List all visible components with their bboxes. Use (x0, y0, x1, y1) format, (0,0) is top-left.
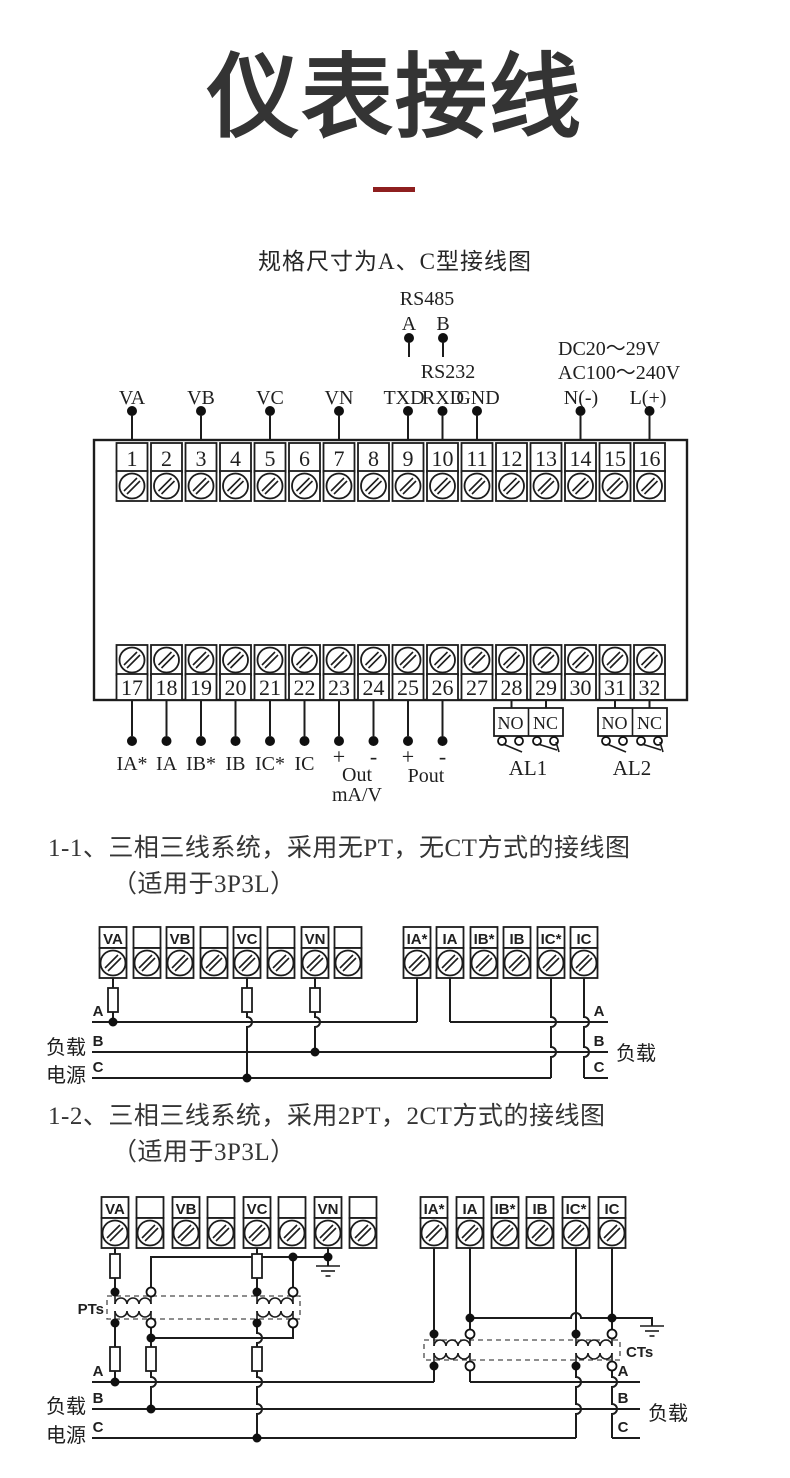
relay-al1: NO NC AL1 (494, 700, 563, 780)
terminal-number: 16 (639, 446, 661, 471)
terminal-number: 30 (570, 675, 592, 700)
main-terminal-diagram: RS485 A B RS232 TXD RXD GND DC20～29V AC1… (0, 280, 790, 810)
title-underline (373, 187, 415, 192)
terminal-number: 17 (121, 675, 143, 700)
pt-transformers: PTs (78, 1288, 300, 1328)
phase-b-right: B (618, 1390, 629, 1407)
phase-c-left: C (93, 1419, 104, 1436)
page-title: 仪表接线 (0, 52, 790, 144)
terminal-number: 3 (196, 446, 207, 471)
terminal-cell: 3 (186, 443, 217, 501)
terminal-number: 27 (466, 675, 488, 700)
source-label-line1: 负载 (46, 1395, 86, 1418)
phase-c-right: C (618, 1419, 629, 1436)
rs485-label: RS485 (400, 288, 454, 310)
terminal-label: VC (237, 931, 258, 948)
terminal-cell: IA (457, 1197, 484, 1248)
terminal-cell: 27 (462, 645, 493, 700)
terminal-cell: 2 (151, 443, 182, 501)
vc-label: VC (256, 387, 284, 409)
terminal-cell (279, 1197, 306, 1248)
al1-nc-label: NC (533, 713, 558, 733)
rs232-block: RS232 TXD RXD GND (383, 361, 499, 409)
relay-al2: NO NC AL2 (598, 700, 667, 780)
terminal-cell: 10 (427, 443, 458, 501)
terminal-cell: 24 (358, 645, 389, 700)
gnd-label: GND (456, 387, 499, 409)
ac-rating-label: AC100～240V (558, 362, 681, 384)
diagram2-current-terminals: IA* IA IB* IB IC* IC (421, 1197, 626, 1248)
terminal-cell: VA (102, 1197, 129, 1248)
terminal-cell: 11 (462, 443, 493, 501)
terminal-cell: 5 (255, 443, 286, 501)
terminal-number: 2 (161, 446, 172, 471)
terminal-number: 14 (570, 446, 592, 471)
vb-label: VB (187, 387, 215, 409)
terminal-number: 6 (299, 446, 310, 471)
source-label-line2: 电源 (46, 1064, 86, 1087)
ia-star-label: IA* (116, 753, 147, 775)
terminal-cell (268, 927, 295, 978)
phase-a-left: A (93, 1363, 104, 1380)
terminal-cell: VB (167, 927, 194, 978)
diagram1-voltage-terminals: VA VB VC VN (100, 927, 362, 978)
ic-label: IC (295, 753, 315, 775)
dc-rating-label: DC20～29V (558, 338, 661, 360)
al2-no-label: NO (602, 713, 628, 733)
terminal-cell: 32 (634, 645, 665, 700)
terminal-number: 15 (604, 446, 626, 471)
pts-label: PTs (78, 1301, 104, 1318)
terminal-number: 28 (501, 675, 523, 700)
terminal-cell: IC* (538, 927, 565, 978)
terminal-cell: IB (527, 1197, 554, 1248)
out-unit-label: mA/V (332, 784, 383, 806)
terminal-number: 8 (368, 446, 379, 471)
neutral-label: N(-) (564, 387, 598, 409)
line-label: L(+) (630, 387, 667, 409)
terminal-cell (208, 1197, 235, 1248)
terminal-cell: 21 (255, 645, 286, 700)
terminal-cell: IB* (471, 927, 498, 978)
rs485-a-label: A (402, 313, 417, 335)
bottom-lead-wires (127, 700, 448, 746)
phase-c-right: C (594, 1059, 605, 1076)
terminal-number: 29 (535, 675, 557, 700)
terminal-cell: 25 (393, 645, 424, 700)
terminal-cell: 19 (186, 645, 217, 700)
section-1-1-heading: 1-1、三相三线系统，采用无PT，无CT方式的接线图 (48, 828, 768, 864)
power-supply-block: DC20～29V AC100～240V N(-) L(+) (558, 338, 681, 409)
terminal-cell: 26 (427, 645, 458, 700)
phase-c-left: C (93, 1059, 104, 1076)
terminal-cell: 20 (220, 645, 251, 700)
terminal-cell: 22 (289, 645, 320, 700)
terminal-cell: VA (100, 927, 127, 978)
terminal-label: IA (463, 1201, 478, 1218)
terminal-number: 5 (265, 446, 276, 471)
al1-no-label: NO (498, 713, 524, 733)
terminal-label: VC (247, 1201, 268, 1218)
voltage-input-labels: VA VB VC VN (119, 387, 354, 409)
terminal-label: IC (605, 1201, 620, 1218)
terminal-cell: 30 (565, 645, 596, 700)
terminal-label: VA (103, 931, 123, 948)
terminal-cell: 14 (565, 443, 596, 501)
wiring-diagram-no-pt-ct: VA VB VC VN IA* IA IB* IB IC* IC A B C 负… (0, 905, 790, 1100)
ib-label: IB (226, 753, 246, 775)
terminal-number: 11 (466, 446, 487, 471)
terminal-number: 1 (127, 446, 138, 471)
phase-b-left: B (93, 1033, 104, 1050)
section-1-2-subheading: （适用于3P3L） (112, 1132, 790, 1168)
out-label: Out (342, 764, 372, 786)
terminal-number: 19 (190, 675, 212, 700)
terminal-cell: IA* (421, 1197, 448, 1248)
terminal-cell (137, 1197, 164, 1248)
phase-a-right: A (594, 1003, 605, 1020)
phase-b-right: B (594, 1033, 605, 1050)
terminal-cell (201, 927, 228, 978)
terminal-label: IA* (407, 931, 428, 948)
source-label-line1: 负载 (46, 1036, 86, 1059)
load-label: 负载 (616, 1042, 656, 1065)
terminal-label: VN (318, 1201, 339, 1218)
terminal-number: 12 (501, 446, 523, 471)
terminal-label: IC* (566, 1201, 587, 1218)
load-label: 负载 (648, 1402, 688, 1425)
terminal-cell: 17 (117, 645, 148, 700)
terminal-number: 18 (156, 675, 178, 700)
al1-label: AL1 (509, 756, 548, 780)
al2-nc-label: NC (637, 713, 662, 733)
terminal-cell: 28 (496, 645, 527, 700)
current-input-labels: IA* IA IB* IB IC* IC (116, 753, 314, 775)
ib-star-label: IB* (186, 753, 216, 775)
phase-a-right: A (618, 1363, 629, 1380)
terminal-cell: 6 (289, 443, 320, 501)
terminal-cell: IB (504, 927, 531, 978)
terminal-cell: IA* (404, 927, 431, 978)
terminal-cell (335, 927, 362, 978)
terminal-cell: IC (599, 1197, 626, 1248)
phase-a-left: A (93, 1003, 104, 1020)
terminal-cell: IB* (492, 1197, 519, 1248)
phase-b-left: B (93, 1390, 104, 1407)
terminal-label: VB (170, 931, 191, 948)
analog-output-labels: + - Out mA/V + - Pout (332, 744, 446, 806)
terminal-label: VA (105, 1201, 125, 1218)
terminal-cell: 15 (600, 443, 631, 501)
terminal-number: 10 (432, 446, 454, 471)
cts-label: CTs (626, 1344, 653, 1361)
vn-label: VN (325, 387, 354, 409)
terminal-number: 25 (397, 675, 419, 700)
txd-label: TXD (383, 387, 424, 409)
rs485-b-label: B (436, 313, 449, 335)
terminal-cell: IC* (563, 1197, 590, 1248)
rs232-label: RS232 (421, 361, 475, 383)
terminal-label: IC* (541, 931, 562, 948)
terminal-cell: 12 (496, 443, 527, 501)
section-1-1-subheading: （适用于3P3L） (112, 864, 790, 900)
diagram2-voltage-terminals: VA VB VC VN (102, 1197, 377, 1248)
terminal-cell: 31 (600, 645, 631, 700)
terminal-label: IB* (474, 931, 495, 948)
terminal-cell: VB (173, 1197, 200, 1248)
terminal-cell: 4 (220, 443, 251, 501)
wiring-diagram-2pt-2ct: PTs CTs VA VB VC VN IA* IA IB* IB IC* IC… (0, 1190, 790, 1478)
terminal-label: IB* (495, 1201, 516, 1218)
terminal-number: 26 (432, 675, 454, 700)
terminal-label: IC (577, 931, 592, 948)
terminal-label: IA* (424, 1201, 445, 1218)
terminal-cell: 1 (117, 443, 148, 501)
terminal-number: 21 (259, 675, 281, 700)
terminal-cell: 18 (151, 645, 182, 700)
diagram1-labels: A B C 负载 电源 A B C 负载 (46, 1003, 656, 1087)
terminal-cell: 7 (324, 443, 355, 501)
terminal-cell: VN (302, 927, 329, 978)
terminal-label: IA (443, 931, 458, 948)
subtitle: 规格尺寸为A、C型接线图 (0, 242, 790, 276)
terminal-cell (134, 927, 161, 978)
terminal-label: VB (176, 1201, 197, 1218)
terminal-number: 22 (294, 675, 316, 700)
va-label: VA (119, 387, 146, 409)
terminal-cell: VC (244, 1197, 271, 1248)
section-1-2-heading: 1-2、三相三线系统，采用2PT，2CT方式的接线图 (48, 1096, 768, 1132)
terminal-cell: 23 (324, 645, 355, 700)
ic-star-label: IC* (255, 753, 285, 775)
terminal-cell: 16 (634, 443, 665, 501)
terminal-cell: IC (571, 927, 598, 978)
diagram2-labels: A B C 负载 电源 A B C 负载 (46, 1363, 688, 1447)
terminal-label: IB (510, 931, 525, 948)
terminal-number: 9 (403, 446, 414, 471)
al2-label: AL2 (613, 756, 652, 780)
terminal-cell: 8 (358, 443, 389, 501)
terminal-cell: 9 (393, 443, 424, 501)
terminal-number: 13 (535, 446, 557, 471)
rs485-block: RS485 A B (400, 288, 454, 357)
diagram2-wires (92, 1248, 664, 1443)
terminal-label: VN (305, 931, 326, 948)
top-lead-wires (127, 406, 655, 443)
terminal-number: 7 (334, 446, 345, 471)
terminal-number: 20 (225, 675, 247, 700)
terminal-number: 24 (363, 675, 385, 700)
terminal-number: 31 (604, 675, 626, 700)
terminal-cell (350, 1197, 377, 1248)
source-label-line2: 电源 (46, 1424, 86, 1447)
terminal-cell: 29 (531, 645, 562, 700)
diagram1-current-terminals: IA* IA IB* IB IC* IC (404, 927, 598, 978)
terminal-cell: VC (234, 927, 261, 978)
terminal-cell: IA (437, 927, 464, 978)
terminal-number: 4 (230, 446, 241, 471)
terminal-number: 23 (328, 675, 350, 700)
meter-body-outline (94, 440, 687, 700)
ia-label: IA (156, 753, 178, 775)
terminal-label: IB (533, 1201, 548, 1218)
terminal-number: 32 (639, 675, 661, 700)
pout-label: Pout (408, 765, 445, 787)
diagram1-wires (92, 978, 608, 1083)
terminal-cell: VN (315, 1197, 342, 1248)
terminal-cell: 13 (531, 443, 562, 501)
